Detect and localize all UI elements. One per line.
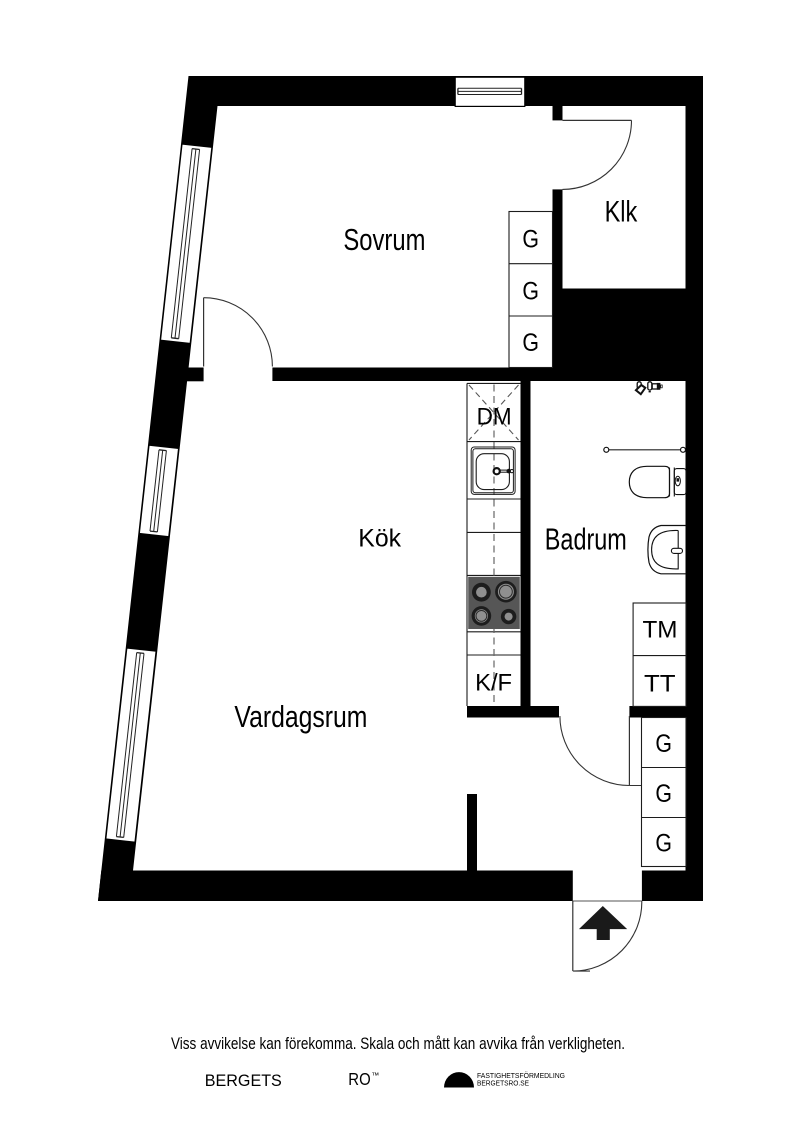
svg-text:TM: TM bbox=[643, 617, 678, 644]
svg-text:G: G bbox=[655, 780, 672, 808]
svg-text:Sovrum: Sovrum bbox=[343, 223, 425, 257]
svg-text:DM: DM bbox=[477, 405, 512, 431]
svg-text:RO: RO bbox=[348, 1069, 370, 1089]
svg-text:Kök: Kök bbox=[358, 524, 401, 552]
svg-text:TT: TT bbox=[644, 670, 676, 697]
svg-text:G: G bbox=[522, 278, 539, 306]
svg-text:Badrum: Badrum bbox=[545, 524, 627, 557]
svg-text:Vardagsrum: Vardagsrum bbox=[234, 699, 367, 734]
svg-text:Viss avvikelse kan förekomma.: Viss avvikelse kan förekomma. Skala och … bbox=[171, 1034, 625, 1053]
svg-text:G: G bbox=[522, 329, 539, 357]
svg-text:G: G bbox=[655, 830, 672, 858]
svg-text:BERGETS: BERGETS bbox=[205, 1071, 282, 1090]
svg-text:BERGETSRO.SE: BERGETSRO.SE bbox=[477, 1079, 529, 1088]
svg-text:G: G bbox=[655, 730, 672, 758]
svg-text:G: G bbox=[522, 225, 539, 253]
svg-text:K/F: K/F bbox=[475, 670, 512, 697]
svg-text:Klk: Klk bbox=[605, 197, 638, 229]
svg-text:™: ™ bbox=[371, 1071, 379, 1080]
